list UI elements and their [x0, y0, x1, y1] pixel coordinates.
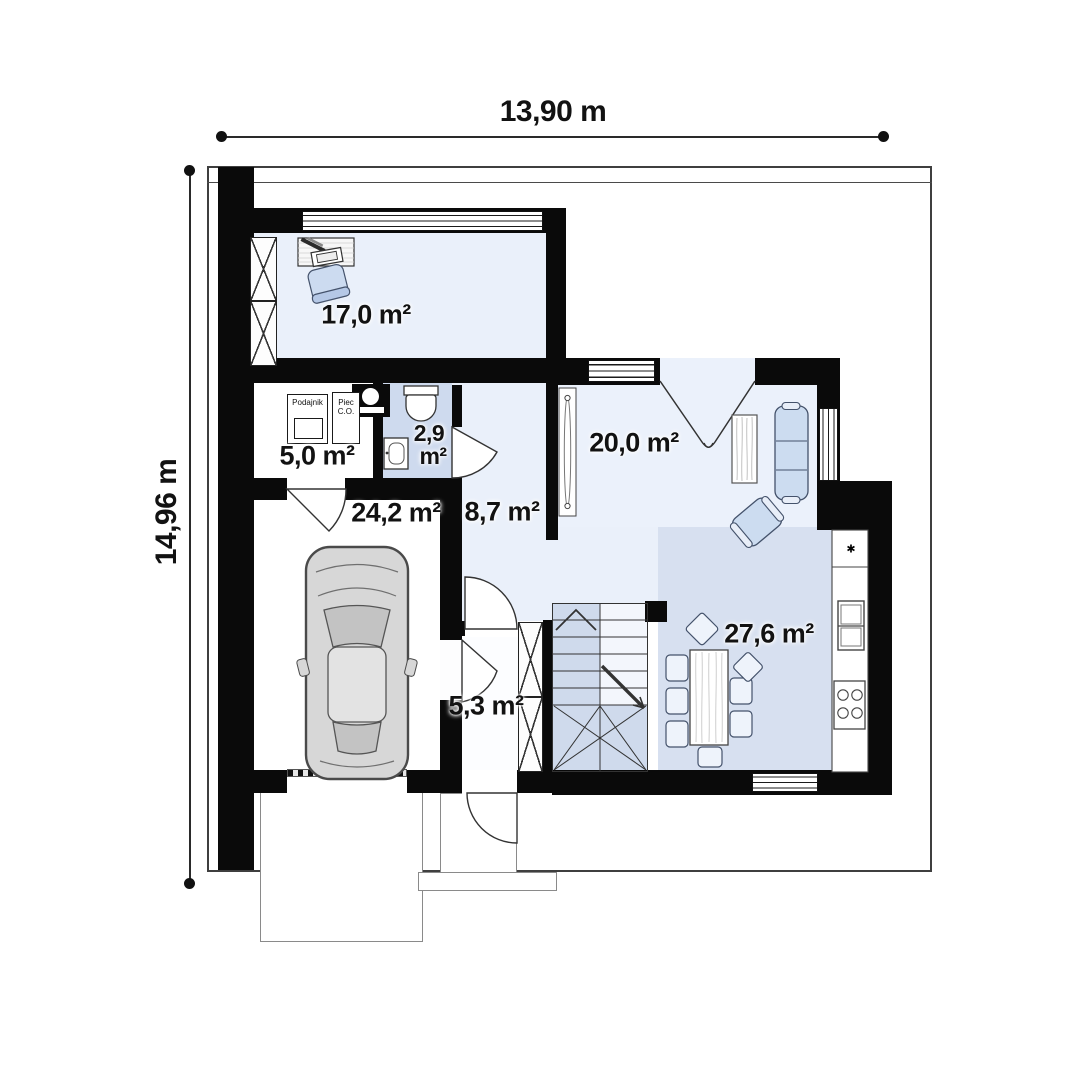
armchair-icon	[728, 494, 787, 551]
label-bath-line2: m²	[411, 445, 446, 468]
fridge-icon: ✱	[846, 543, 855, 556]
stove-icon	[834, 681, 865, 729]
radiator-icon	[559, 388, 576, 516]
label-entry-area: 5,3 m²	[448, 691, 523, 722]
sofa-icon	[775, 403, 808, 504]
label-office-area: 17,0 m²	[321, 300, 411, 331]
label-hall-area: 8,7 m²	[464, 497, 539, 528]
dining-table-icon	[690, 650, 728, 745]
furnace: Piec C.O.	[332, 392, 360, 444]
dimension-dot	[184, 165, 195, 176]
washbasin-icon	[384, 438, 408, 469]
sink-icon	[838, 601, 864, 650]
coffee-table-icon	[732, 415, 757, 483]
dimension-line-top	[222, 136, 884, 138]
desk-icon	[298, 235, 354, 267]
car-icon	[296, 547, 418, 779]
door-bathroom	[452, 427, 497, 478]
floor-plan: Podajnik Piec C.O. ✱ 13,90 m 14,96 m 17,…	[0, 0, 1080, 1080]
boiler-feeder-label: Podajnik	[288, 398, 327, 407]
stairs	[552, 603, 648, 772]
dimension-width-label: 13,90 m	[500, 95, 607, 129]
door-front	[467, 793, 517, 843]
label-bath-line1: 2,9	[411, 422, 446, 445]
dimension-dot	[878, 131, 889, 142]
furnace-label-2: C.O.	[333, 407, 359, 416]
boiler-feeder: Podajnik	[287, 394, 328, 444]
boiler-feeder-hopper	[294, 418, 323, 439]
desk-chair-icon	[306, 263, 351, 304]
furnace-label-1: Piec	[333, 398, 359, 407]
label-boiler-area: 5,0 m²	[279, 441, 354, 472]
label-kitchen-area: 27,6 m²	[724, 619, 814, 650]
dimension-height-label: 14,96 m	[150, 459, 184, 566]
toilet-icon	[404, 386, 438, 421]
dimension-dot	[184, 878, 195, 889]
door-boiler	[287, 489, 346, 531]
kitchen-counter	[832, 530, 868, 772]
door-hall-entry	[465, 577, 517, 629]
label-bath-area: 2,9 m²	[411, 422, 446, 468]
label-living-area: 20,0 m²	[589, 428, 679, 459]
label-garage-area: 24,2 m²	[351, 498, 441, 529]
dimension-dot	[216, 131, 227, 142]
dimension-line-left	[189, 171, 191, 883]
